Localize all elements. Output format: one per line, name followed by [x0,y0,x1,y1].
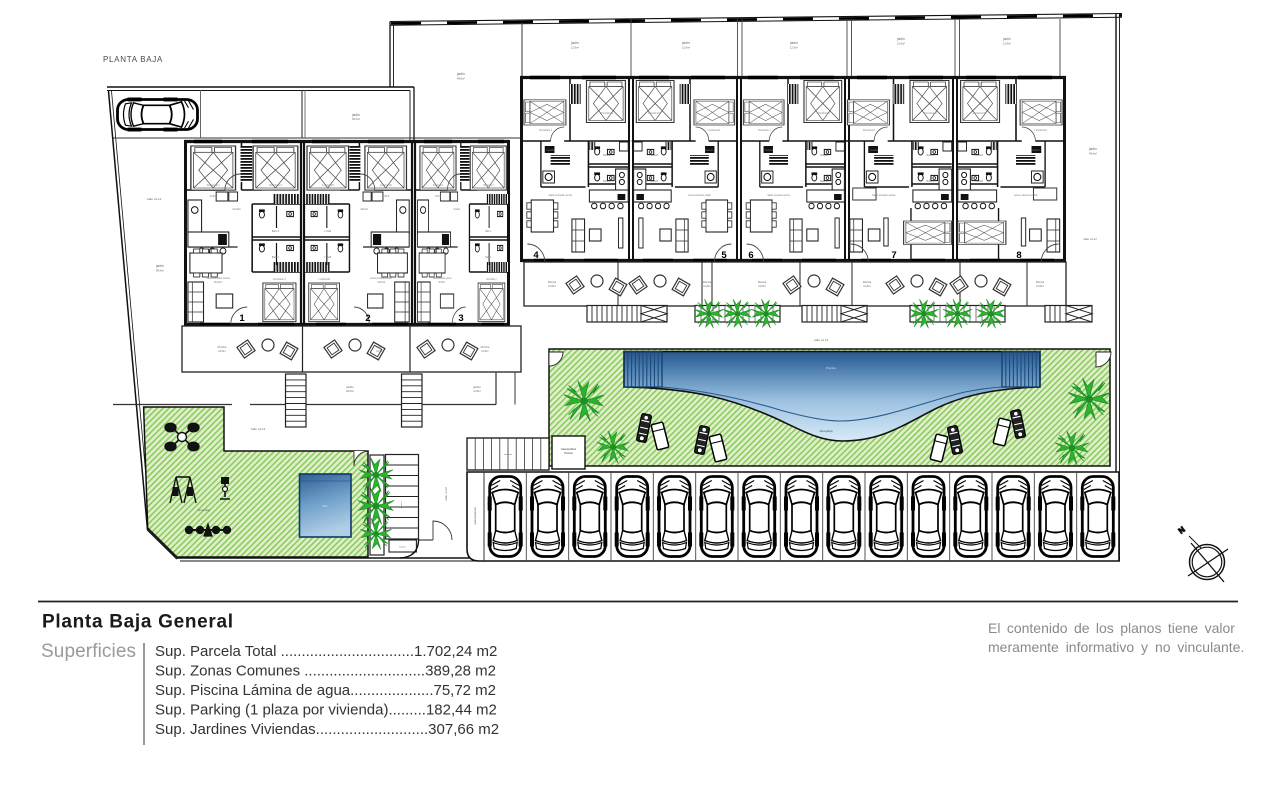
svg-text:SPA: SPA [322,504,328,508]
svg-text:49,4m²: 49,4m² [1089,152,1097,156]
svg-text:Zona play: Zona play [198,508,211,512]
svg-text:calle +0.12: calle +0.12 [814,338,829,342]
svg-text:Sup. Piscina Lámina de agua...: Sup. Piscina Lámina de agua.............… [155,682,496,699]
svg-text:9,00m²: 9,00m² [435,195,441,198]
svg-text:jardín: jardín [155,264,164,268]
svg-text:5: 5 [721,250,727,261]
svg-text:Planta Baja General: Planta Baja General [42,612,234,633]
svg-text:Dormitorio 1: Dormitorio 1 [863,129,876,132]
svg-text:Baño 2: Baño 2 [272,230,280,233]
svg-text:Vestidor: Vestidor [453,208,460,211]
svg-text:Vestidor: Vestidor [705,149,713,152]
svg-text:12,9m²: 12,9m² [571,46,579,50]
svg-text:Zona playa: Zona playa [820,429,833,433]
svg-text:Baño 2: Baño 2 [927,154,935,157]
svg-text:Salón-comedor-cocina: Salón-comedor-cocina [433,278,452,280]
svg-text:Baño 2: Baño 2 [975,154,983,157]
svg-text:6: 6 [748,250,753,261]
svg-text:Dormitorio 3: Dormitorio 3 [483,184,494,187]
svg-text:Baño 2: Baño 2 [324,230,332,233]
svg-text:Salón-comedor-cocina: Salón-comedor-cocina [688,195,711,197]
svg-text:Dormitorio 1: Dormitorio 1 [486,278,497,281]
svg-text:7: 7 [891,250,896,261]
svg-text:jardín: jardín [456,72,465,76]
svg-text:Piscina: Piscina [1036,280,1045,284]
svg-text:El contenido de los planos tie: El contenido de los planos tiene valor [988,620,1235,636]
svg-text:Porche: Porche [481,345,490,349]
svg-text:Dormitorio 3: Dormitorio 3 [321,184,333,187]
svg-text:49,8m²: 49,8m² [457,77,465,81]
svg-text:Baño 2: Baño 2 [603,154,611,157]
svg-text:3: 3 [458,313,463,324]
svg-text:8: 8 [1016,250,1021,261]
svg-text:Sup. Parking (1 plaza por vivi: Sup. Parking (1 plaza por vivienda).....… [155,702,497,719]
svg-text:Baño 2: Baño 2 [820,154,828,157]
svg-text:Caseta Motor: Caseta Motor [561,447,577,451]
svg-text:Dormitorio 3: Dormitorio 3 [269,184,282,187]
svg-text:acera peatonal: acera peatonal [473,507,477,525]
svg-text:Piscina: Piscina [548,280,557,284]
svg-text:Sup. Parcela Total ...........: Sup. Parcela Total .....................… [155,643,497,660]
svg-text:1: 1 [239,313,245,324]
svg-text:12,5m²: 12,5m² [703,285,711,288]
svg-text:Baño 1: Baño 1 [650,180,658,183]
svg-text:Dormitorio 2: Dormitorio 2 [972,112,985,115]
svg-text:Dormitorio 1: Dormitorio 1 [273,278,286,281]
svg-text:Dormitorio 2: Dormitorio 2 [379,184,391,187]
svg-text:Salón-comedor-cocina: Salón-comedor-cocina [872,194,896,197]
svg-text:28,18m²: 28,18m² [439,281,446,284]
svg-text:jardín: jardín [351,113,360,117]
svg-text:12,5m²: 12,5m² [376,350,384,353]
svg-text:Vestidor: Vestidor [870,149,879,152]
svg-text:Dormitorio 2: Dormitorio 2 [207,184,220,187]
svg-text:2: 2 [365,313,370,324]
svg-text:Porche: Porche [376,345,385,349]
svg-text:12,5m²: 12,5m² [481,350,489,353]
svg-text:jardín: jardín [345,385,354,389]
svg-text:Salón-comedor-cocina: Salón-comedor-cocina [767,195,790,197]
svg-text:Vestidor: Vestidor [765,149,773,152]
svg-text:4: 4 [533,250,539,261]
svg-text:calle +0.12: calle +0.12 [147,197,162,201]
svg-text:Vestidor: Vestidor [360,208,368,211]
svg-text:35,2m²: 35,2m² [352,117,360,121]
svg-text:12,5m²: 12,5m² [1036,285,1044,288]
svg-text:Baño 1: Baño 1 [603,180,611,183]
svg-text:Vestidor: Vestidor [232,208,241,211]
svg-text:calle +0.12: calle +0.12 [1083,237,1097,241]
svg-text:12,5m²: 12,5m² [218,350,226,353]
svg-text:12,9m²: 12,9m² [897,42,905,46]
svg-text:jardín: jardín [1088,147,1097,151]
svg-text:Salón-comedor-cocina: Salón-comedor-cocina [370,278,392,280]
svg-text:9,00m²: 9,00m² [210,195,217,198]
svg-text:Baño 1: Baño 1 [927,180,935,183]
svg-text:Dormitorio 1: Dormitorio 1 [539,129,552,132]
svg-text:Baño 1: Baño 1 [820,180,828,183]
svg-text:Sup. Jardines Viviendas.......: Sup. Jardines Viviendas.................… [155,721,499,738]
svg-text:Superficies: Superficies [41,641,136,662]
svg-text:Baño 1: Baño 1 [324,256,332,259]
svg-text:Salón-comedor-cocina: Salón-comedor-cocina [1013,194,1037,197]
svg-text:trasteros: trasteros [504,453,513,456]
svg-text:Dormitorio 1: Dormitorio 1 [758,129,771,132]
svg-text:Vestidor: Vestidor [546,149,555,152]
svg-text:Salón-comedor-cocina: Salón-comedor-cocina [549,194,573,197]
svg-text:Dormitorio 1: Dormitorio 1 [318,278,330,281]
svg-text:Piscina: Piscina [826,366,836,370]
svg-text:Piscina: Piscina [703,280,712,284]
svg-text:jardín: jardín [896,37,905,41]
svg-text:Ducha: Ducha [399,547,406,549]
svg-text:calle +0.12: calle +0.12 [444,487,448,501]
svg-text:Dormitorio 2: Dormitorio 2 [433,184,444,187]
svg-text:jardín: jardín [789,41,798,45]
svg-text:Baño 1: Baño 1 [272,256,280,259]
svg-text:jardín: jardín [681,41,690,45]
svg-text:PLANTA BAJA: PLANTA BAJA [103,55,163,64]
svg-text:Vestidor: Vestidor [1031,149,1040,152]
svg-text:jardín: jardín [570,41,579,45]
svg-text:28,18m²: 28,18m² [214,281,223,284]
svg-text:12,9m²: 12,9m² [682,46,690,50]
svg-text:9,00m²: 9,00m² [382,195,389,198]
svg-text:Sup. Zonas Comunes ...........: Sup. Zonas Comunes .....................… [155,663,496,680]
svg-text:Dormitorio 2: Dormitorio 2 [818,112,831,115]
svg-text:Dormitorio 2: Dormitorio 2 [601,112,614,115]
svg-text:Dormitorio 1: Dormitorio 1 [1033,129,1046,132]
svg-text:12,5m²: 12,5m² [863,285,871,288]
svg-text:99,4m²: 99,4m² [156,269,164,273]
svg-text:Dormitorio 2: Dormitorio 2 [924,112,937,115]
svg-text:Piscina: Piscina [758,280,767,284]
svg-text:meramente informativo y no vin: meramente informativo y no vinculante. [988,639,1244,655]
svg-text:jardín: jardín [472,385,481,389]
svg-text:11,8m²: 11,8m² [473,390,481,393]
svg-text:jardín: jardín [1002,37,1011,41]
svg-text:12,9m²: 12,9m² [790,46,798,50]
svg-text:Baño 2: Baño 2 [650,154,658,157]
svg-text:calle +0.12: calle +0.12 [251,427,266,431]
svg-text:acceso: acceso [401,501,403,509]
svg-text:Dormitorio 1: Dormitorio 1 [707,129,720,132]
svg-text:26,5m²: 26,5m² [346,390,354,393]
svg-text:12,9m²: 12,9m² [1003,42,1011,46]
svg-text:12,5m²: 12,5m² [758,285,766,288]
svg-text:Baño 1: Baño 1 [485,256,492,259]
svg-text:Dormitorio 2: Dormitorio 2 [647,112,660,115]
svg-text:Salón-comedor-cocina: Salón-comedor-cocina [206,277,230,280]
svg-text:Baño 2: Baño 2 [485,230,492,233]
svg-text:Piscina: Piscina [564,451,573,455]
svg-text:28,18m²: 28,18m² [377,281,385,284]
svg-text:12,5m²: 12,5m² [548,285,556,288]
svg-text:Piscina: Piscina [863,280,872,284]
svg-text:Porche: Porche [218,345,227,349]
svg-text:Baño 1: Baño 1 [975,180,983,183]
